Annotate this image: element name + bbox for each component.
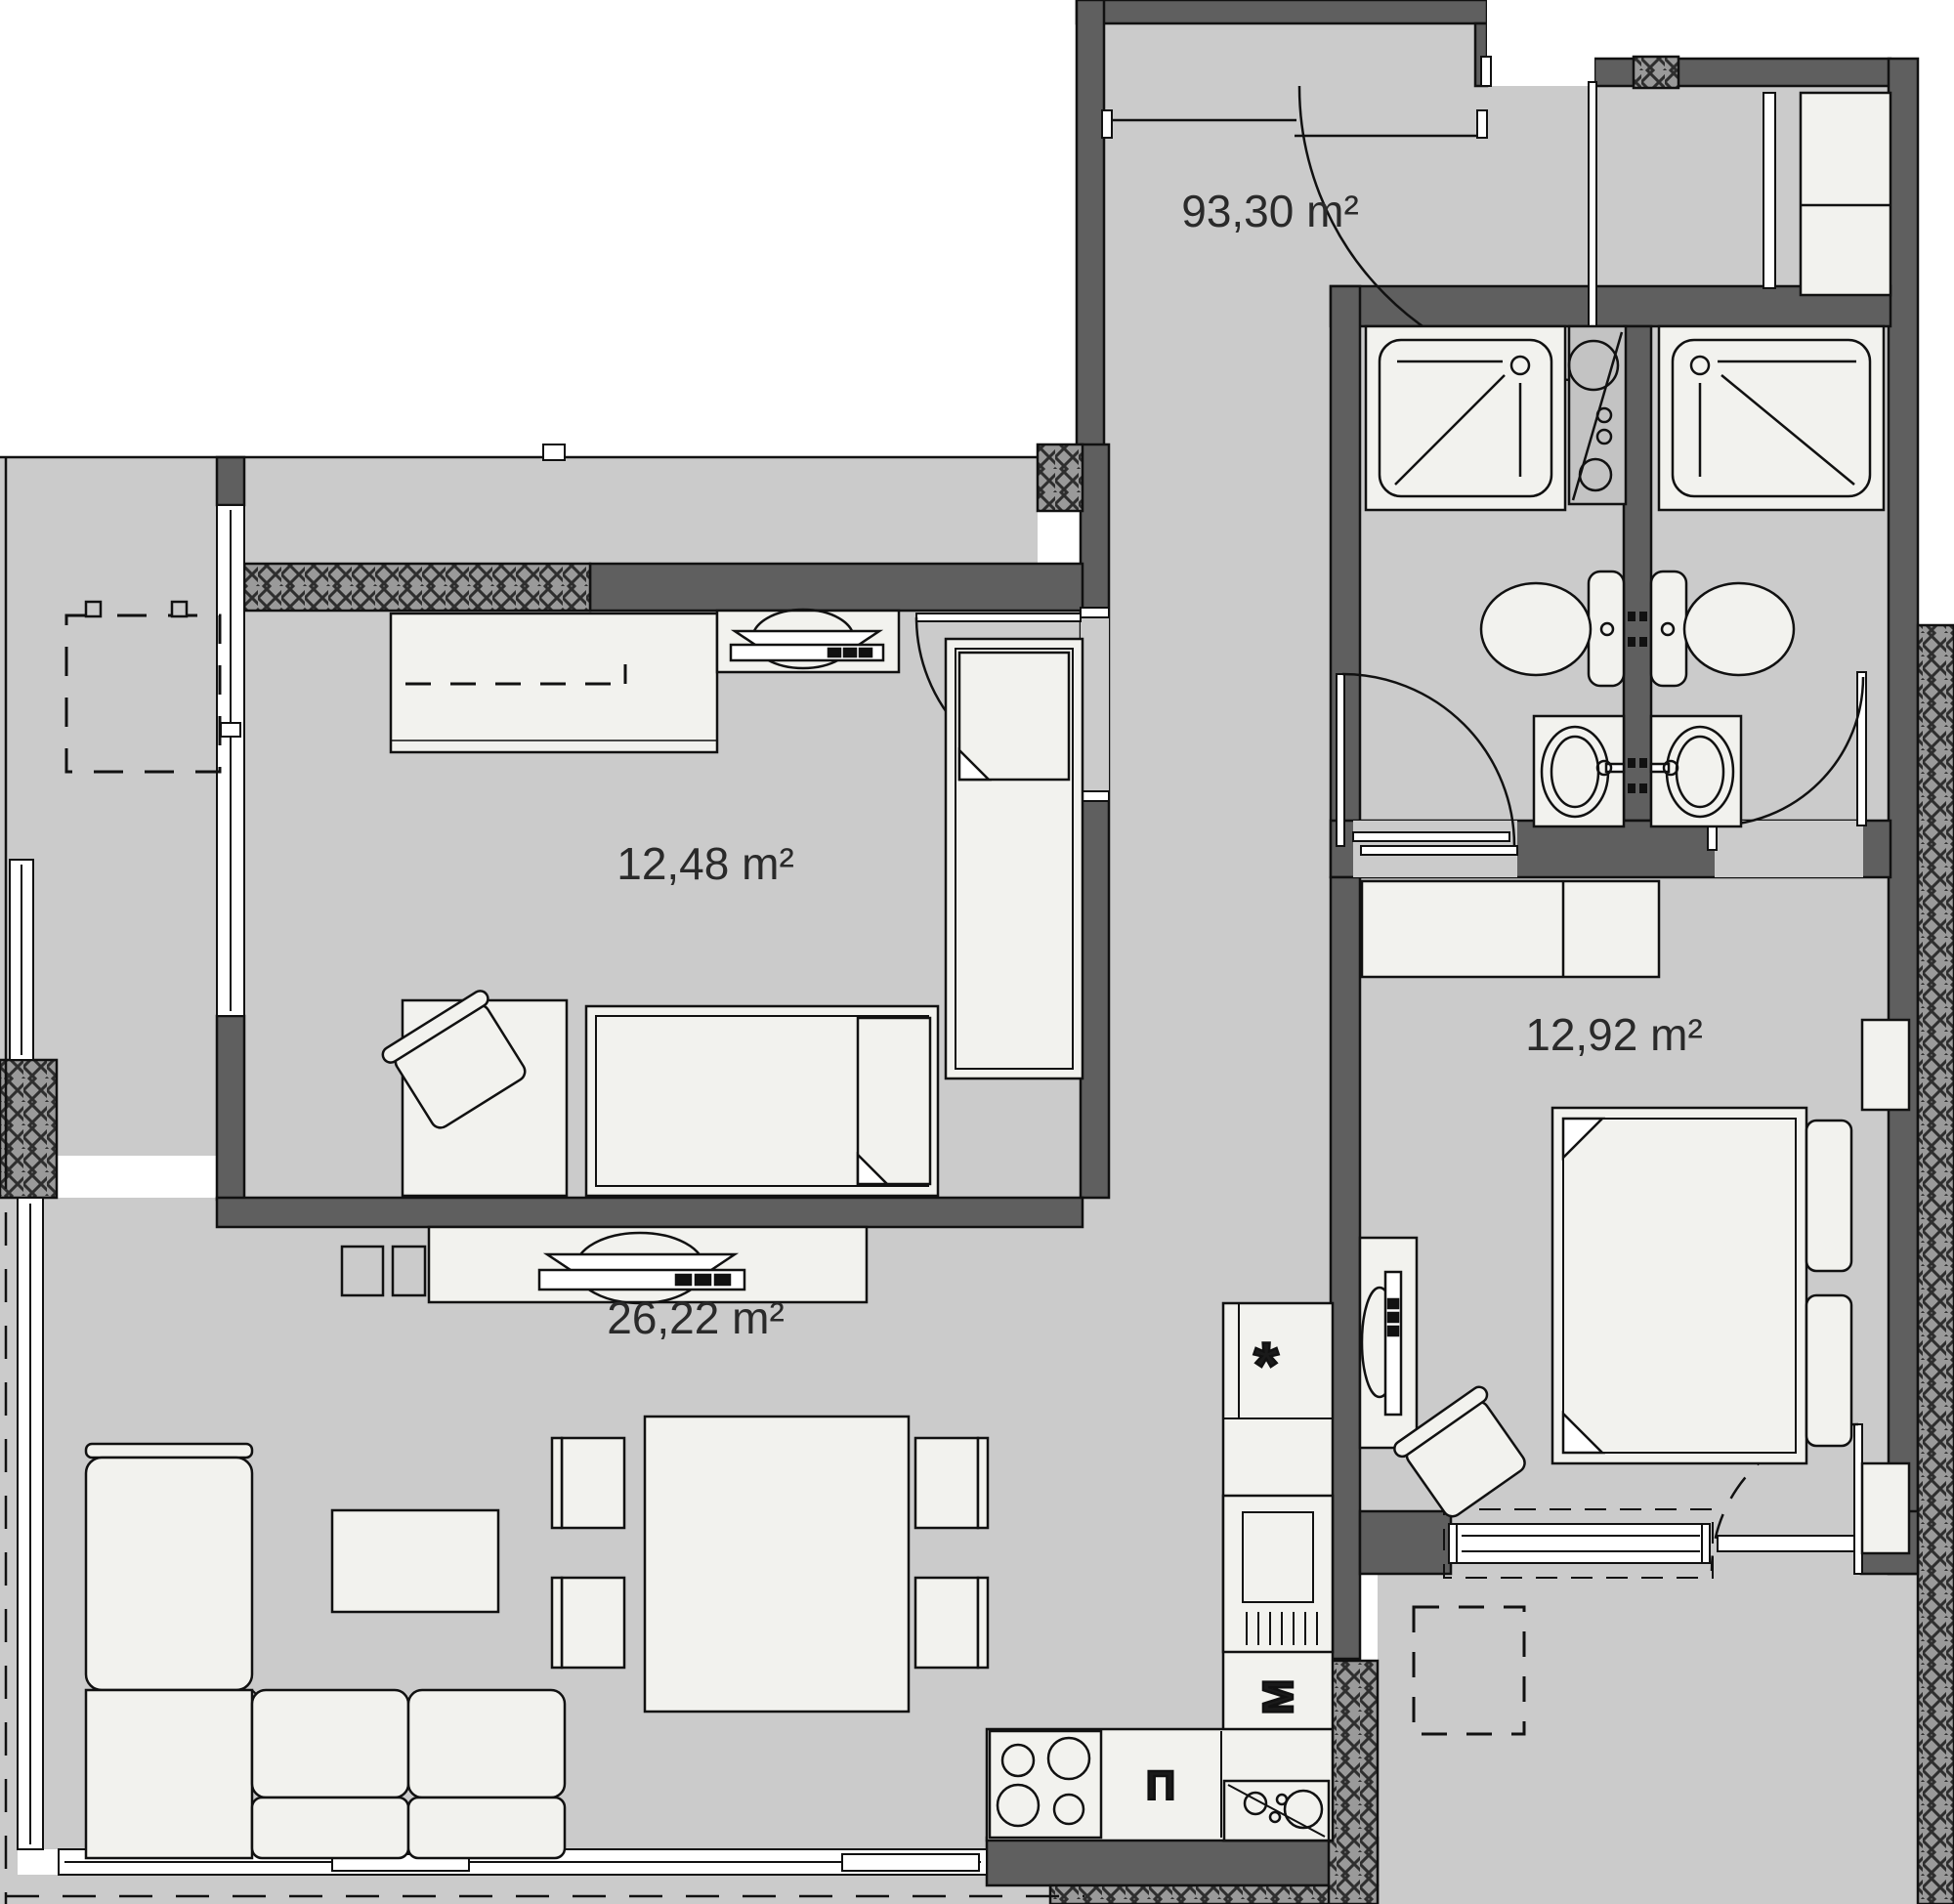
shower-tray-icon [1366,326,1565,510]
nightstand [1862,1020,1909,1110]
chair [915,1578,988,1668]
single-bed-horizontal [586,1006,938,1196]
label-living-kitchen: 26,22 m² [607,1292,785,1343]
shower-tray-icon [1659,326,1884,510]
fridge-icon [1223,1496,1333,1652]
washer-symbol: М [1254,1679,1302,1715]
label-total-area: 93,30 m² [1181,186,1359,236]
chair [552,1438,624,1528]
corridor-cabinet [1362,881,1659,977]
chair [552,1578,624,1668]
desk [1360,1238,1417,1448]
wash-basin-icon [1651,716,1741,826]
window-bedroom-small-west [217,505,244,1016]
wash-basin-icon [1534,716,1624,826]
coffee-table [332,1510,498,1612]
tv-shelf [717,610,899,672]
wardrobe [391,614,717,752]
chair [915,1438,988,1528]
label-bedroom-master: 12,92 m² [1525,1009,1703,1060]
floor-plan-drawing: * М П [0,0,1954,1904]
window-living-west [18,1198,43,1849]
single-bed-vertical [946,639,1083,1079]
double-bed [1552,1108,1851,1463]
cooktop-icon [990,1731,1101,1838]
kitchen-sink-icon [1224,1781,1329,1841]
oven-symbol: П [1146,1762,1175,1808]
fridge-symbol: * [1253,1329,1279,1401]
floor-plan-page: * М П [0,0,1954,1904]
dining-table [645,1417,909,1712]
label-bedroom-small: 12,48 m² [616,838,794,889]
nightstand [1862,1463,1909,1553]
water-heater-icon [1569,326,1626,504]
window-terrace-left [10,860,33,1060]
